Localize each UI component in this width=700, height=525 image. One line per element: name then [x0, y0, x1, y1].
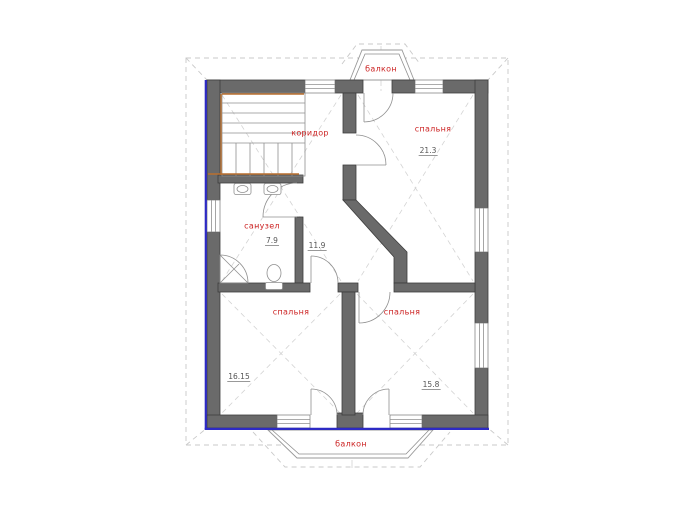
- window-bottom-left: [277, 415, 310, 428]
- doors: [263, 93, 393, 415]
- door-bedroom-top-right: [356, 135, 386, 165]
- room-label-balcony-top: балкон: [365, 65, 397, 74]
- toilet: [266, 265, 283, 290]
- room-label-bathroom: санузел: [244, 222, 280, 231]
- door-balcony-bottom-right: [363, 389, 389, 415]
- room-area-bedroom-top-right: 21.3: [419, 146, 438, 156]
- room-label-bedroom-bottom-right: спальня: [384, 308, 421, 317]
- room-label-corridor: коридор: [291, 129, 329, 138]
- room-area-bathroom: 7.9: [265, 236, 279, 246]
- door-balcony-top: [364, 93, 393, 122]
- window-bathroom-left: [207, 200, 220, 232]
- room-label-balcony-bottom: балкон: [335, 440, 367, 449]
- room-area-bedroom-bottom-right: 15.8: [422, 380, 441, 390]
- room-area-corridor: 11.9: [308, 241, 327, 251]
- floor-plan: балкон коридор спальня 21.3 санузел 7.9 …: [0, 0, 700, 525]
- sink: [264, 184, 281, 195]
- window-bottom-right: [390, 415, 422, 428]
- window-right-upper: [475, 208, 488, 252]
- room-label-bedroom-bottom-left: спальня: [273, 308, 310, 317]
- room-label-bedroom-top-right: спальня: [415, 125, 452, 134]
- shower: [220, 255, 248, 283]
- door-balcony-bottom-left: [311, 389, 337, 415]
- sink: [234, 184, 251, 195]
- window-corridor-top: [305, 80, 335, 93]
- window-right-lower: [475, 323, 488, 368]
- room-area-bedroom-bottom-left: 16.15: [227, 372, 250, 382]
- window-top-right: [415, 80, 443, 93]
